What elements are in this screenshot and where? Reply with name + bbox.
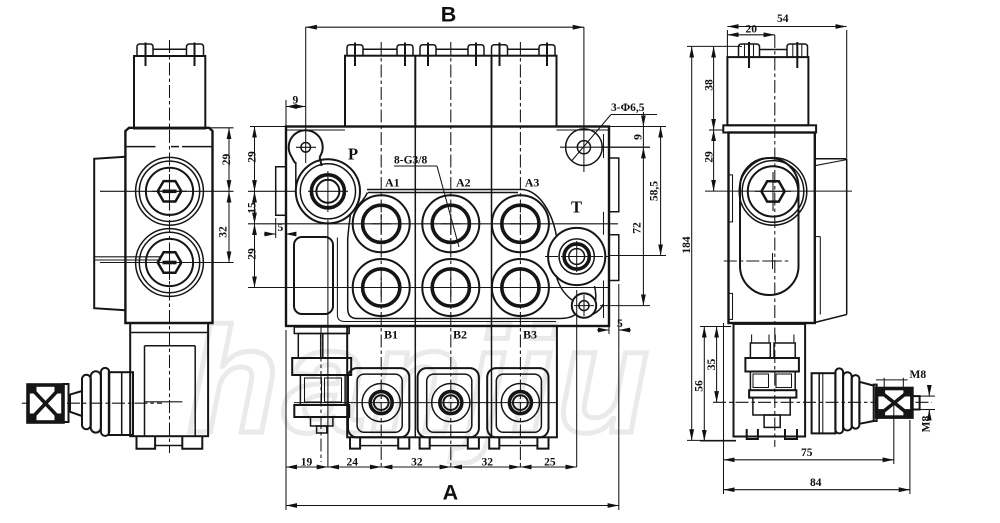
svg-text:B: B	[441, 3, 457, 27]
svg-text:38: 38	[704, 79, 716, 91]
svg-text:5: 5	[617, 318, 623, 330]
svg-text:M8: M8	[910, 369, 927, 381]
svg-text:8-G3/8: 8-G3/8	[394, 155, 427, 167]
svg-text:29: 29	[221, 154, 233, 166]
svg-text:72: 72	[632, 222, 644, 234]
svg-text:20: 20	[746, 24, 758, 36]
svg-text:A3: A3	[525, 176, 540, 190]
svg-text:3-Φ6,5: 3-Φ6,5	[611, 102, 645, 114]
svg-text:5: 5	[278, 222, 284, 234]
svg-text:B1: B1	[384, 328, 398, 342]
svg-text:184: 184	[681, 236, 693, 254]
svg-text:A2: A2	[456, 176, 471, 190]
svg-text:32: 32	[481, 457, 493, 469]
svg-text:P: P	[348, 145, 358, 164]
svg-text:15: 15	[247, 202, 259, 214]
svg-text:19: 19	[301, 457, 313, 469]
svg-text:29: 29	[704, 151, 716, 163]
svg-text:29: 29	[247, 248, 259, 260]
svg-text:9: 9	[293, 95, 299, 107]
svg-text:56: 56	[694, 380, 706, 392]
svg-text:T: T	[571, 198, 582, 217]
svg-text:29: 29	[247, 151, 259, 163]
svg-text:54: 54	[777, 13, 789, 25]
svg-text:A: A	[443, 481, 459, 505]
svg-text:9: 9	[633, 134, 645, 140]
svg-text:25: 25	[544, 457, 556, 469]
svg-text:58,5: 58,5	[649, 181, 661, 201]
svg-text:A1: A1	[385, 176, 400, 190]
svg-text:M8: M8	[921, 415, 933, 432]
svg-text:32: 32	[218, 226, 230, 238]
svg-text:B3: B3	[523, 328, 537, 342]
svg-text:24: 24	[346, 457, 358, 469]
svg-text:B2: B2	[453, 328, 467, 342]
svg-text:75: 75	[801, 447, 813, 459]
svg-text:35: 35	[706, 359, 718, 371]
svg-text:84: 84	[810, 477, 822, 489]
svg-text:32: 32	[411, 457, 423, 469]
